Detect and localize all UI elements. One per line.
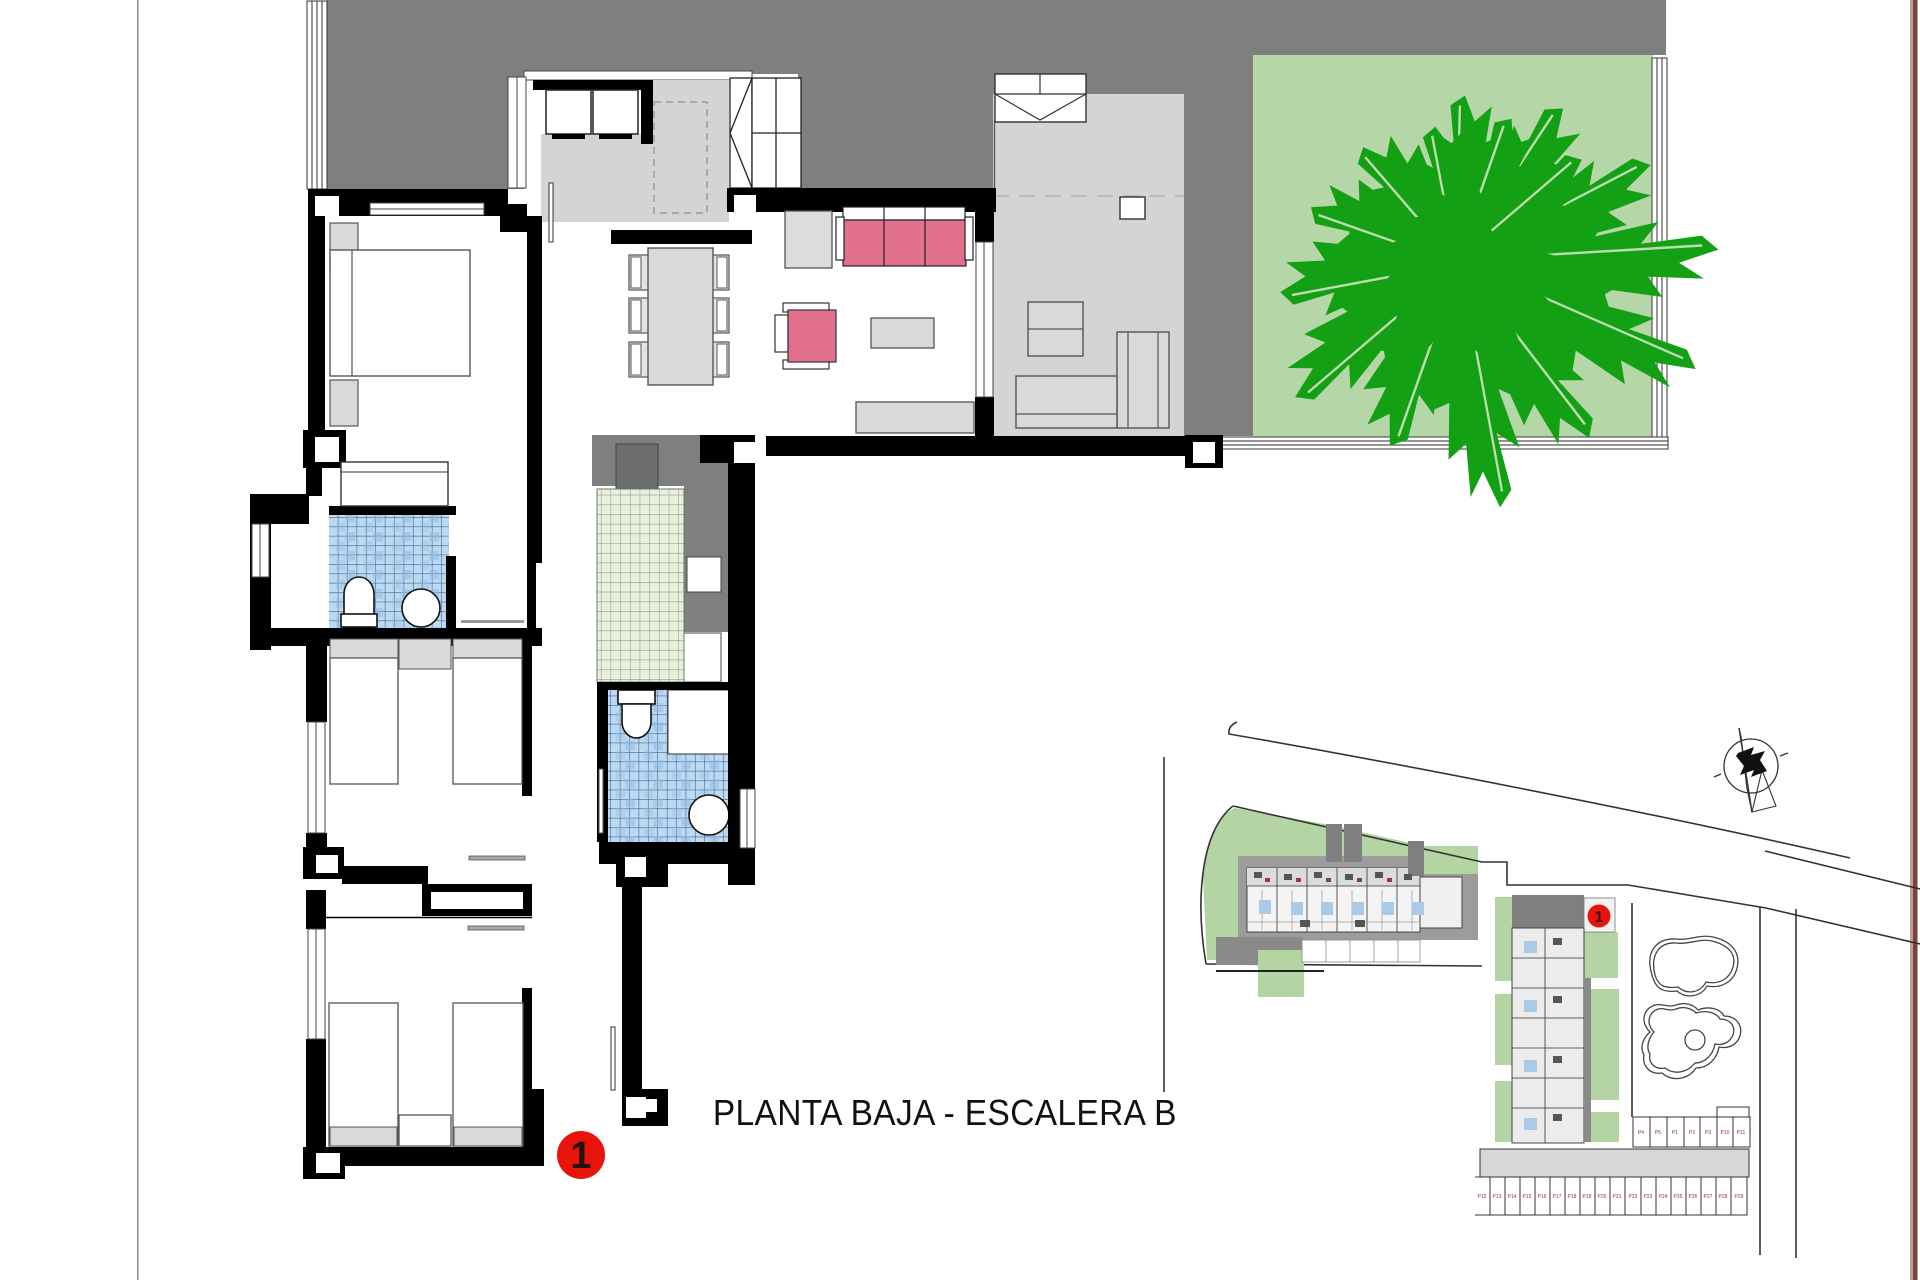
svg-text:P25: P25: [1674, 1194, 1683, 1200]
svg-text:P3: P3: [1705, 1130, 1711, 1136]
svg-text:P26: P26: [1689, 1194, 1698, 1200]
svg-text:P23: P23: [1644, 1194, 1653, 1200]
svg-text:P27: P27: [1704, 1194, 1713, 1200]
svg-text:P16: P16: [1538, 1194, 1547, 1200]
svg-text:P12: P12: [1478, 1194, 1487, 1200]
svg-text:P13: P13: [1493, 1194, 1502, 1200]
svg-text:P28: P28: [1719, 1194, 1728, 1200]
svg-text:P11: P11: [1737, 1130, 1746, 1136]
svg-text:P18: P18: [1568, 1194, 1577, 1200]
svg-text:P19: P19: [1583, 1194, 1592, 1200]
svg-text:P2: P2: [1689, 1130, 1695, 1136]
svg-text:P4: P4: [1638, 1130, 1644, 1136]
svg-text:P17: P17: [1553, 1194, 1562, 1200]
svg-text:P15: P15: [1523, 1194, 1532, 1200]
svg-text:P14: P14: [1508, 1194, 1517, 1200]
svg-text:1: 1: [570, 1135, 591, 1177]
svg-text:P5: P5: [1655, 1130, 1661, 1136]
svg-text:P1: P1: [1672, 1130, 1678, 1136]
svg-text:PLANTA BAJA - ESCALERA B: PLANTA BAJA - ESCALERA B: [713, 1094, 1177, 1133]
svg-text:P22: P22: [1629, 1194, 1638, 1200]
svg-text:P20: P20: [1598, 1194, 1607, 1200]
svg-text:1: 1: [1595, 909, 1604, 926]
svg-text:P29: P29: [1735, 1194, 1744, 1200]
svg-text:P24: P24: [1659, 1194, 1668, 1200]
svg-text:P21: P21: [1613, 1194, 1622, 1200]
svg-text:P10: P10: [1721, 1130, 1730, 1136]
